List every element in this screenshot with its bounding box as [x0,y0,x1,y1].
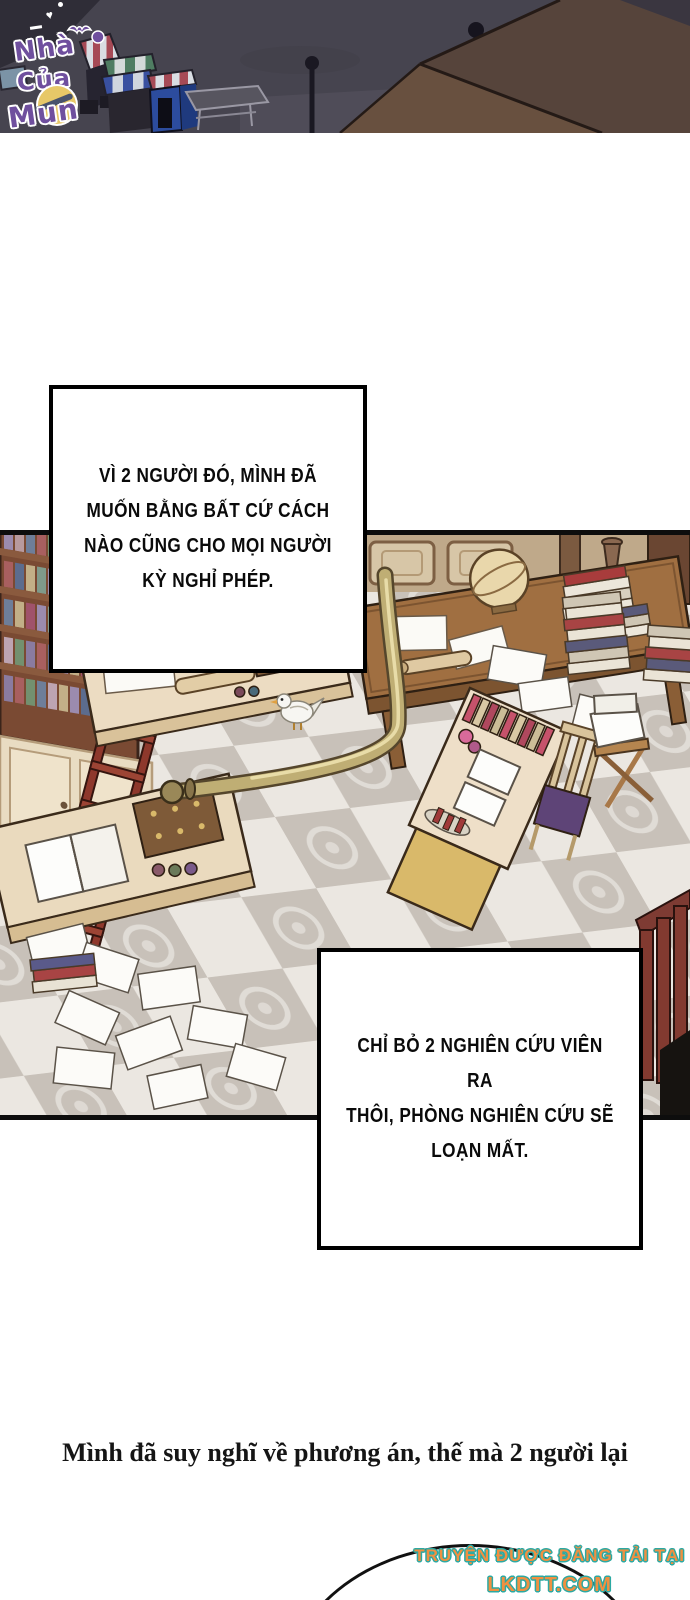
bird-head [277,694,291,708]
speech-bubble-2: CHỈ BỎ 2 NGHIÊN CỨU VIÊN RA THÔI, PHÒNG … [317,948,643,1250]
speech-bubble-1-text: VÌ 2 NGƯỜI ĐÓ, MÌNH ĐÃ MUỐN BẰNG BẤT CỨ … [84,459,332,599]
tent-opening [158,98,172,128]
lamp-head [305,56,319,70]
site-watermark: TRUYỆN ĐƯỢC ĐĂNG TẢI TẠI LKDTT.COM [414,1546,685,1597]
comic-page: ♥ Nhà Của Mun [0,0,690,1600]
logo-line-1: Nhà [12,30,76,68]
bubble-line: MUỐN BẰNG BẤT CỨ CÁCH [84,494,332,529]
logo-line-3: Mun [6,92,81,135]
paper [518,677,572,714]
speech-bubble-1: VÌ 2 NGƯỜI ĐÓ, MÌNH ĐÃ MUỐN BẰNG BẤT CỨ … [49,385,367,673]
ground-shadow [240,46,360,74]
heart-icon: ♥ [45,7,55,22]
bubble-line: LOẠN MẤT. [343,1134,616,1169]
site-watermark-line-1: TRUYỆN ĐƯỢC ĐĂNG TẢI TẠI [414,1546,685,1566]
bubble-line: VÌ 2 NGƯỜI ĐÓ, MÌNH ĐÃ [84,459,332,494]
translator-logo: ♥ Nhà Của Mun [0,0,120,145]
toppled-books [30,953,97,993]
bubble-line: THÔI, PHÒNG NGHIÊN CỨU SẼ [343,1099,616,1134]
bubble-line: NÀO CŨNG CHO MỌI NGƯỜI [84,529,332,564]
paper-stack [594,694,637,714]
railing-ring [185,779,195,799]
site-watermark-line-2: LKDTT.COM [414,1574,685,1597]
bird-eye [281,698,284,701]
logo-dot [58,2,63,7]
bubble-line: CHỈ BỎ 2 NGHIÊN CỨU VIÊN RA [343,1029,616,1099]
speech-bubble-2-text: CHỈ BỎ 2 NGHIÊN CỨU VIÊN RA THÔI, PHÒNG … [343,1029,616,1169]
narration-text: Mình đã suy nghĩ về phương án, thế mà 2 … [0,1438,690,1468]
ghost-icon [92,31,104,43]
railing-end-cap [161,781,183,803]
logo-dash [30,25,42,30]
bubble-line: KỲ NGHỈ PHÉP. [84,564,332,599]
